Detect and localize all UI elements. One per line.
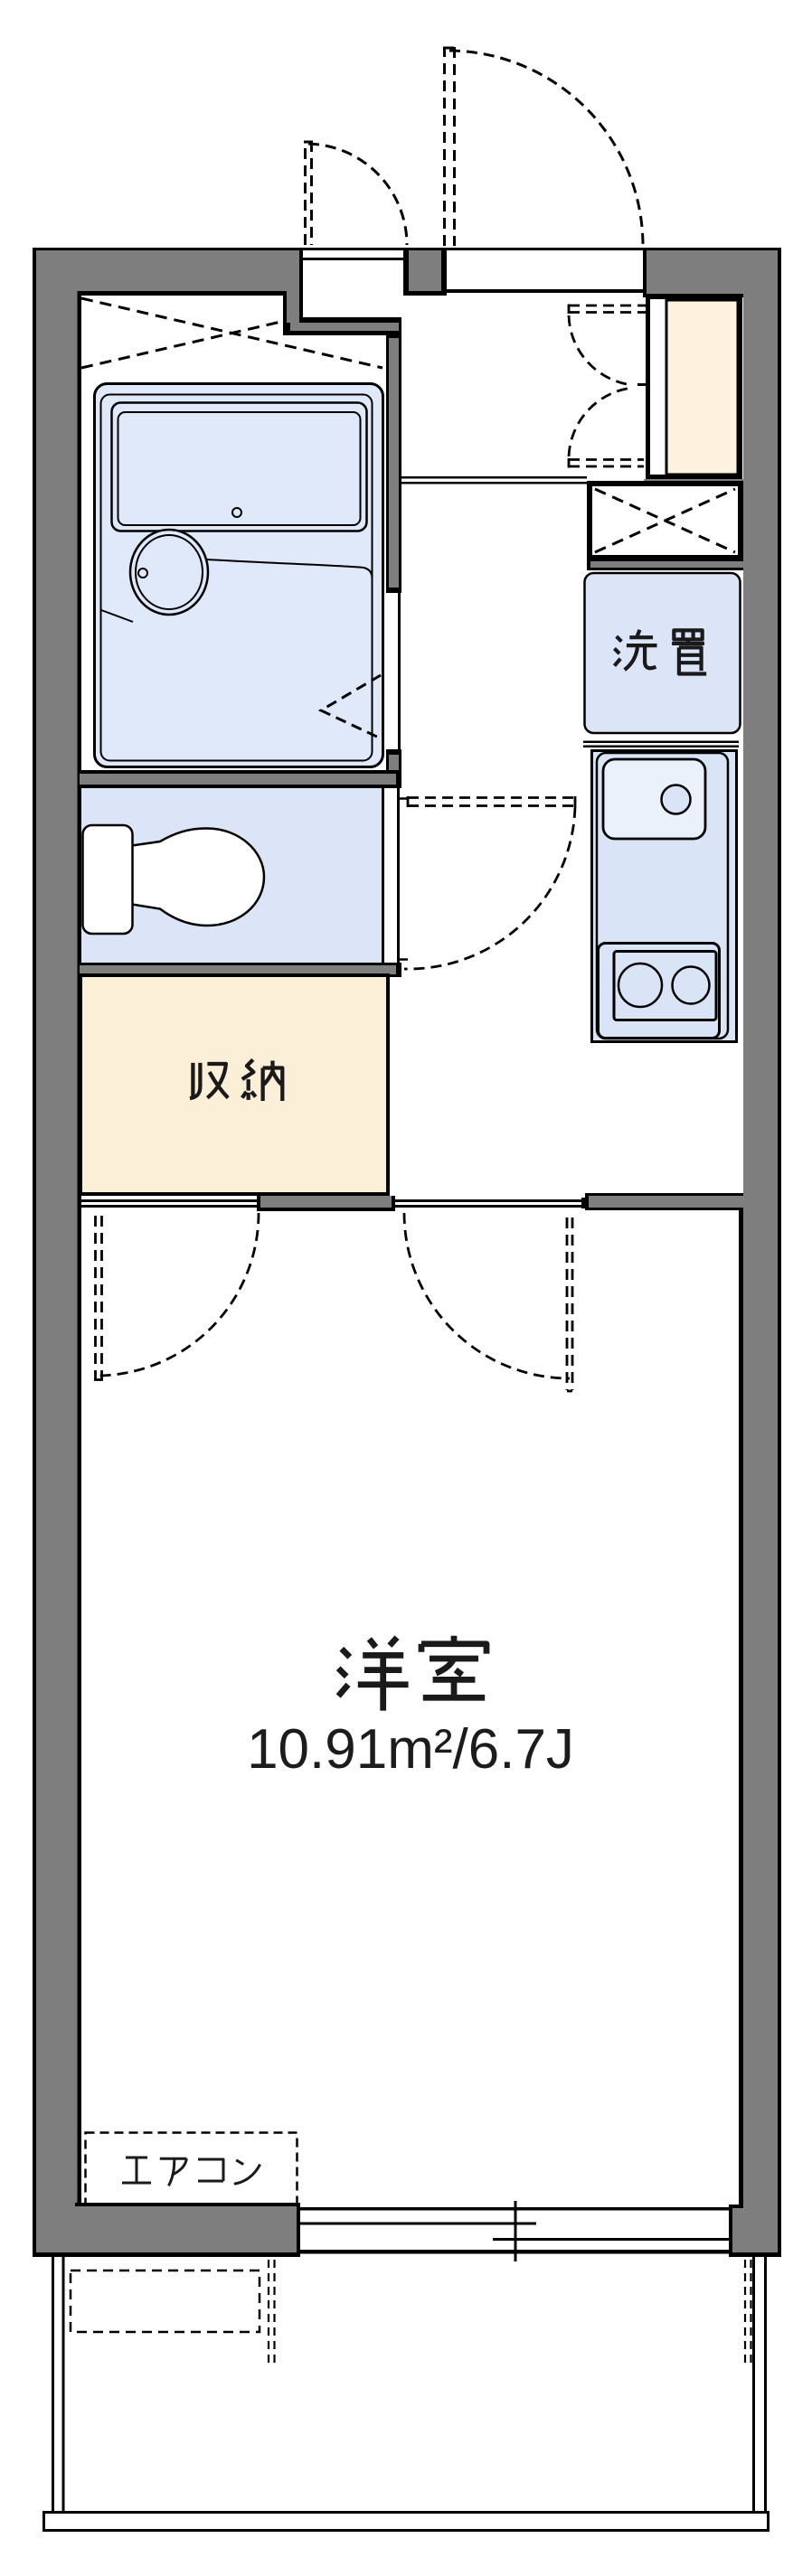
svg-text:10.91m²/6.7J: 10.91m²/6.7J xyxy=(247,1718,574,1781)
